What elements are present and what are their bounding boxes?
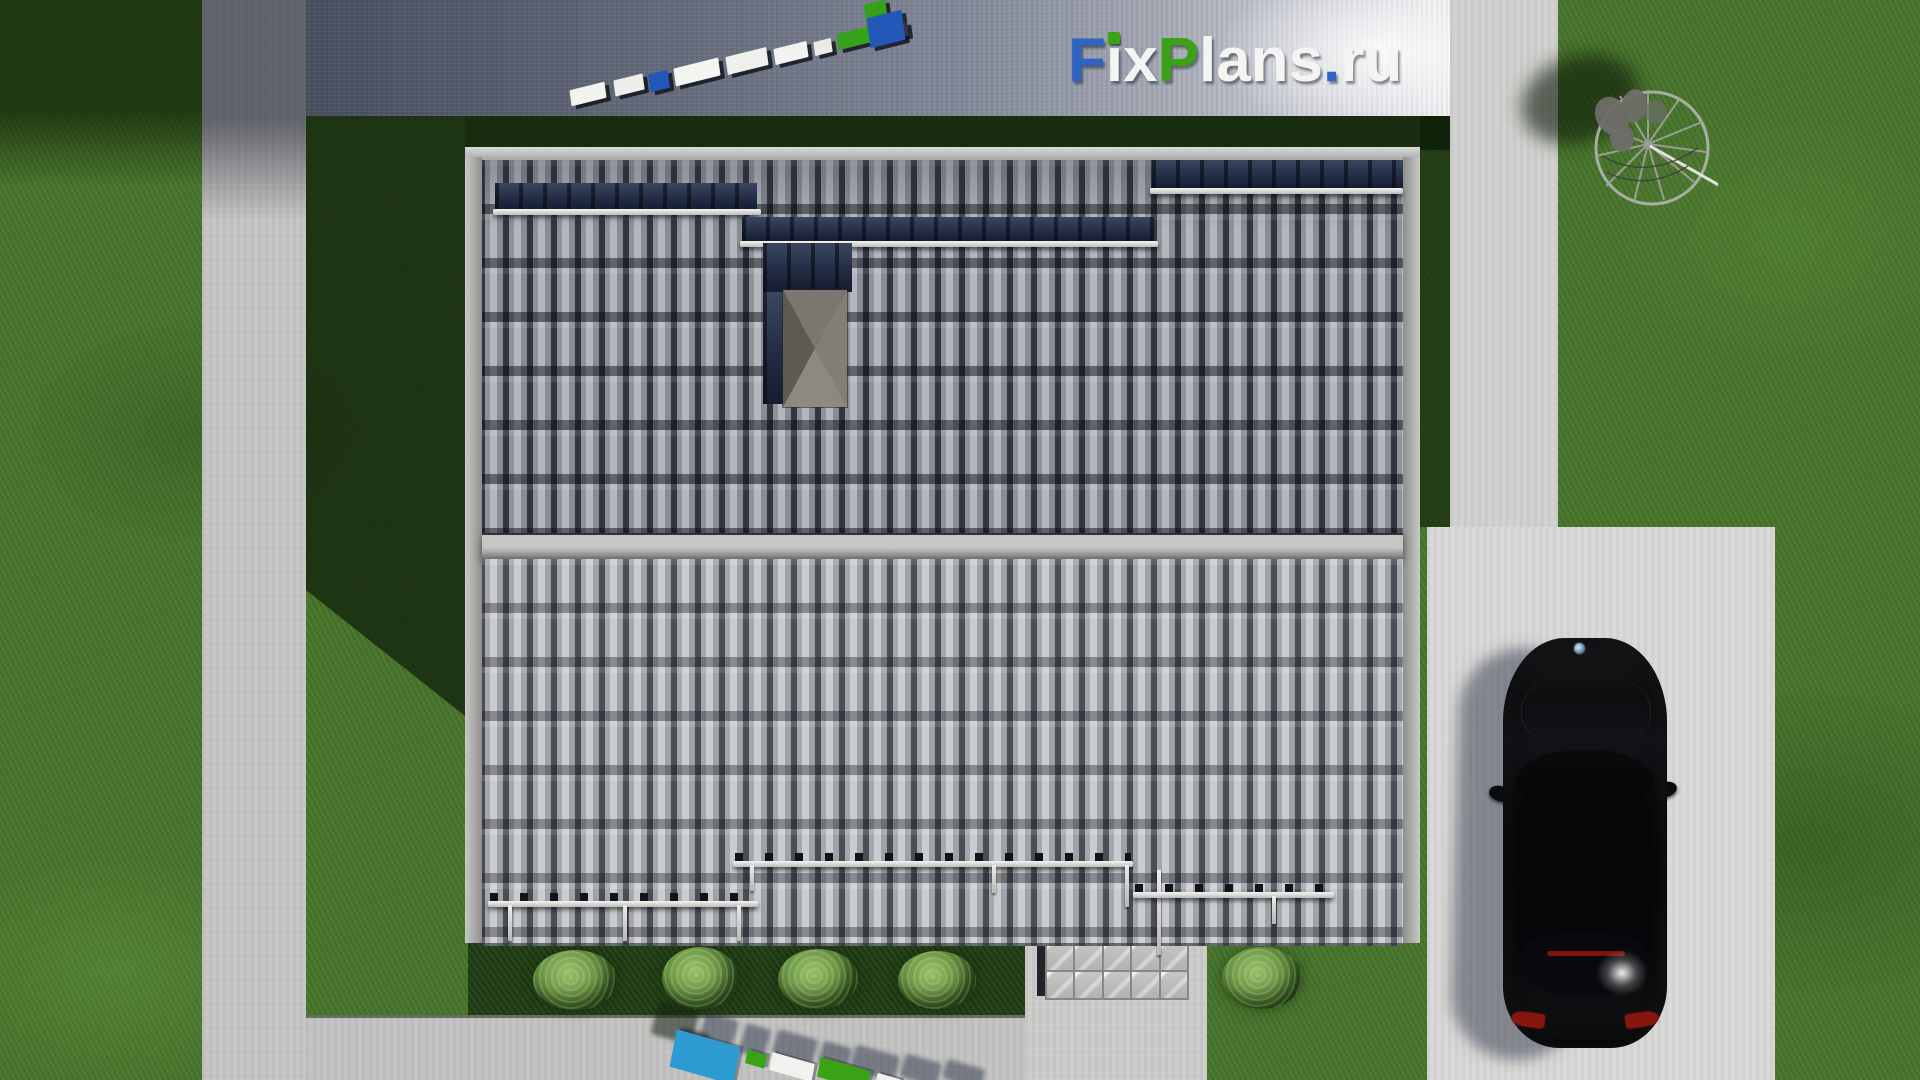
watermark-block	[648, 70, 670, 93]
logo-letter: r	[1340, 26, 1364, 95]
gutter-rod	[992, 865, 996, 893]
snow-guard-band	[742, 217, 1154, 243]
canopy-pane	[1075, 943, 1101, 970]
logo-letter: x	[1123, 26, 1157, 95]
fixplans-logo: FixPlans.ru	[1068, 30, 1402, 92]
gutter-rod	[737, 905, 741, 941]
roof-gable-trim-left	[465, 157, 482, 943]
watermark-block	[773, 41, 808, 65]
black-car	[1503, 638, 1667, 1048]
logo-letter: u	[1364, 26, 1402, 95]
canopy-pane	[1161, 972, 1187, 999]
gutter-rod	[623, 905, 627, 941]
house-shadow	[306, 116, 465, 716]
gutter-rod	[750, 865, 754, 891]
watermark-block	[613, 73, 644, 96]
snow-guard-rail	[493, 209, 761, 215]
canopy-pane	[1132, 972, 1158, 999]
canopy-pane	[1047, 972, 1073, 999]
tree-svg	[1576, 82, 1718, 212]
car-emblem	[1574, 643, 1585, 654]
roof-gable-trim-right	[1403, 157, 1420, 943]
canopy-pane	[1161, 943, 1187, 970]
snow-guard-rail	[733, 861, 1133, 867]
logo-letter: a	[1216, 26, 1250, 95]
snow-guard-band	[1152, 160, 1403, 190]
canopy-pane	[1104, 972, 1130, 999]
chimney-shadow	[763, 243, 852, 292]
canopy-pane	[1047, 943, 1073, 970]
logo-letter: l	[1199, 26, 1216, 95]
logo-letter-i: i	[1106, 26, 1123, 95]
logo-letter: n	[1251, 26, 1289, 95]
gutter-rod	[508, 905, 512, 941]
canopy-pane	[1075, 972, 1101, 999]
watermark-3d-top	[570, 16, 930, 108]
chimney-shadow	[763, 292, 785, 404]
bush-texture	[533, 950, 617, 1010]
car-highlight	[1596, 950, 1648, 996]
logo-letter: F	[1068, 26, 1106, 95]
snow-guard-rail	[1150, 188, 1403, 194]
grass-shadow-above-roof	[465, 116, 1450, 150]
snow-guard-rail	[1133, 892, 1334, 898]
bare-tree-top-view	[1576, 82, 1718, 212]
logo-letter: s	[1289, 26, 1323, 95]
bush	[1222, 947, 1302, 1009]
house-roof	[465, 147, 1420, 943]
hood-seam	[1521, 672, 1651, 746]
logo-i-dot	[1108, 32, 1120, 44]
snow-guard-band	[495, 183, 757, 211]
canopy-pane	[1104, 943, 1130, 970]
roof-slope-upper	[482, 160, 1403, 533]
bush-texture	[1222, 947, 1302, 1009]
aerial-house-render: FixPlans.ru	[0, 0, 1920, 1080]
watermark-block	[813, 38, 832, 56]
watermark-block	[673, 57, 720, 86]
chimney	[783, 290, 847, 407]
logo-letter: P	[1158, 26, 1199, 95]
gutter-rod	[1125, 865, 1129, 907]
car-taillight-left	[1510, 1010, 1546, 1030]
walkway-left	[202, 0, 306, 1080]
gutter-rod	[1272, 896, 1276, 924]
roof-ridge-middle	[482, 533, 1403, 559]
gutter-rod	[1157, 870, 1161, 955]
watermark-block	[569, 82, 606, 107]
bush	[533, 950, 617, 1010]
glass-entrance-canopy	[1045, 941, 1189, 1000]
watermark-3d-bottom	[640, 1000, 1060, 1080]
watermark-letter-shadow	[899, 1053, 942, 1080]
grass-shadow-right-of-roof	[1420, 116, 1450, 527]
walkway-left-shadow	[202, 0, 306, 230]
watermark-block	[725, 47, 768, 75]
watermark-letter-shadow	[942, 1059, 986, 1080]
grass-shadow-topleft	[0, 0, 202, 190]
logo-letter: .	[1323, 26, 1340, 95]
canopy-pane	[1132, 943, 1158, 970]
